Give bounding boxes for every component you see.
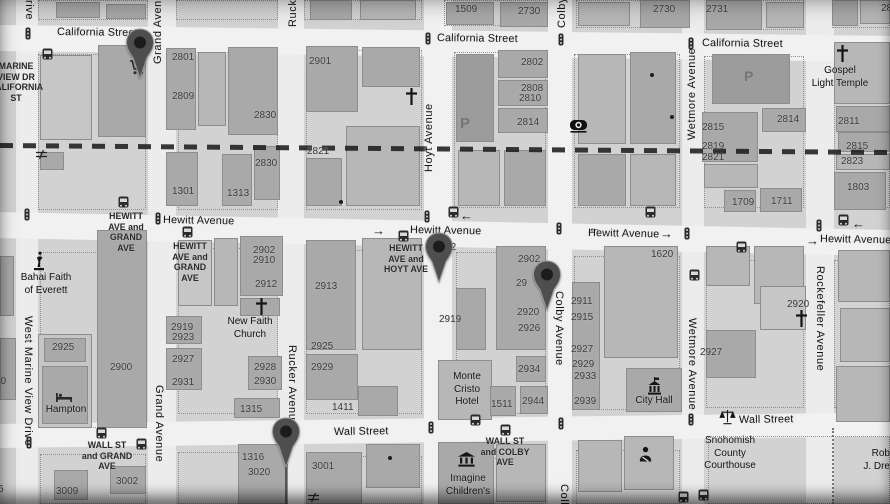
building-number: 2925 [52,342,74,353]
building [0,338,16,400]
building-number: 1509 [455,4,477,15]
oneway-arrow-icon: ← [588,221,601,234]
map-pin-hewitt-hoyt[interactable] [424,232,454,284]
building-number: 2809 [172,91,194,102]
building-number: 1313 [227,188,249,199]
poi-label: Gospel Light Temple [804,65,876,90]
building-number: 2928 [254,362,276,373]
avenue-label: Grand Avenue [151,385,165,463]
building-number: 2901 [309,56,331,67]
building [704,164,758,188]
building [630,52,676,144]
building-number: 2910 [253,255,275,266]
street-label: Wall Street [739,413,794,426]
street-label: California Street [702,37,783,50]
building [214,238,238,306]
building [836,366,890,422]
building [40,55,92,140]
street-label: Hewitt Avenue [820,233,890,246]
building-number: 2730 [518,6,540,17]
building-number: 1411 [332,402,354,413]
building [624,436,674,490]
map-pin-wall-rucker[interactable] [271,417,301,469]
block-dotted-line [832,428,834,504]
building-number: 2927 [700,347,722,358]
building-number: 2920 [787,299,809,310]
building-number: 2931 [172,377,194,388]
building [504,150,546,206]
avenue-label: Rucker Avenue [284,345,298,423]
building [306,158,342,206]
street-label: Hewitt Avenue [163,214,235,227]
building [366,444,420,488]
building [97,230,147,428]
building [766,2,804,28]
building-number: 2811 [838,116,860,127]
poi-label: Hampton [40,404,92,417]
building-number: 1301 [172,186,194,197]
bus-stop-label: HEWITT AVE and GRAND AVE [101,211,151,254]
building-number: 1709 [732,197,754,208]
poi-label: Rob J. Dre [852,448,890,473]
building-number: 2919 [439,314,461,325]
avenue-label: Colby Avenue [556,0,570,28]
avenue-label: Rucker Avenue [287,0,301,27]
building-number: 2927 [571,344,593,355]
building-number: 2912 [255,279,277,290]
poi-label: Imagine Children's [436,473,500,498]
poi-label: New Faith Church [218,316,282,341]
building [578,154,626,206]
map-canvas[interactable]: California StreetCalifornia StreetCalifo… [0,0,890,504]
poi-label: Bahai Faith of Everett [4,272,88,297]
building [578,2,630,26]
building-number: 2939 [574,396,596,407]
building-number: 2944 [522,396,544,407]
parking-label: P [744,68,753,84]
poi-label: Snohomish County Courthouse [696,435,764,473]
building-number: 2927 [172,354,194,365]
building [56,2,100,18]
building [604,246,678,358]
building [630,154,676,206]
map-pin-colby[interactable] [532,260,562,312]
building [166,152,198,206]
building-number: 2900 [110,362,132,373]
avenue-label: Wetmore Avenue [684,318,698,414]
oneway-arrow-icon: → [660,227,673,240]
building-number: 1711 [771,196,793,207]
oneway-arrow-icon: → [806,234,819,247]
building [362,47,420,87]
building-number: 2933 [574,371,596,382]
building [346,126,420,206]
building-number: 2821 [702,152,724,163]
bus-stop-label: WALL ST and COLBY AVE [474,436,536,468]
building-number: 3002 [116,476,138,487]
building-number: 2814 [517,117,539,128]
building-number: 1511 [491,399,513,410]
parking-label: P [460,115,470,132]
building [106,4,146,19]
building-number: 1803 [847,182,869,193]
building [832,0,858,26]
building [306,240,356,350]
avenue-label: Wetmore Avenue [686,50,700,140]
building-number: 6 [0,484,4,495]
avenue-label: West Marine View Drive [20,316,34,446]
poi-label: Monte Cristo Hotel [442,371,492,409]
building-number: 2929 [572,359,594,370]
building-number: 2929 [311,362,333,373]
building-number: 2821 [307,146,329,157]
building-number: 2731 [706,4,728,15]
building [578,440,622,492]
building [458,150,500,206]
building-number: 2930 [254,376,276,387]
building-number: 1315 [240,404,262,415]
building-number: 2830 [254,110,276,121]
building [254,146,280,200]
avenue-label: Rockefeller Avenue [812,266,826,372]
building-number: 2913 [315,281,337,292]
building-number: 2730 [653,4,675,15]
building [358,386,398,416]
bus-stop-label: HEWITT AVE and GRAND AVE [166,241,214,284]
poi-label: City Hall [631,395,677,408]
building-number: 1620 [651,249,673,260]
building-number: 2915 [571,312,593,323]
building-number: 2925 [311,341,333,352]
building-number: 3001 [312,461,334,472]
building-number: 2801 [172,52,194,63]
building [360,0,416,20]
building-number: 2815 [846,141,868,152]
building-number: 28 [881,3,890,14]
building [306,354,358,400]
building-number: 29 [516,278,527,289]
avenue-label: Colby Avenue [556,484,570,504]
building [228,47,278,135]
building-number: 3009 [56,486,78,497]
building-number: 2819 [702,141,724,152]
building-number: 2815 [702,122,724,133]
building-number: 2911 [571,296,593,307]
street-label: California Street [437,32,518,45]
bus-stop-label: MARINE VIEW DR CALIFORNIA ST [0,61,46,104]
building-number: 2814 [777,114,799,125]
oneway-arrow-icon: ← [460,209,473,222]
oneway-arrow-icon: ← [852,217,865,230]
bus-stop-label: WALL ST and GRAND AVE [78,440,136,472]
avenue-label: Hoyt Avenue [423,104,437,172]
building-number: 2830 [255,158,277,169]
building-number: 40 [0,376,6,387]
building-number: 3020 [248,467,270,478]
oneway-arrow-icon: → [372,224,385,237]
building-number: 2810 [519,93,541,104]
building-number: 2823 [841,156,863,167]
building-number: 2926 [518,323,540,334]
avenue-label: rive [21,0,35,28]
building [840,308,890,362]
street-label: Wall Street [334,425,389,438]
building-number: 1316 [242,452,264,463]
map-pin-california[interactable] [125,28,155,80]
building-number: 2934 [518,364,540,375]
building [198,52,226,126]
building [310,0,352,20]
building [838,250,890,302]
building-number: 2802 [521,57,543,68]
building-number: 2923 [172,332,194,343]
city-block [176,0,278,20]
